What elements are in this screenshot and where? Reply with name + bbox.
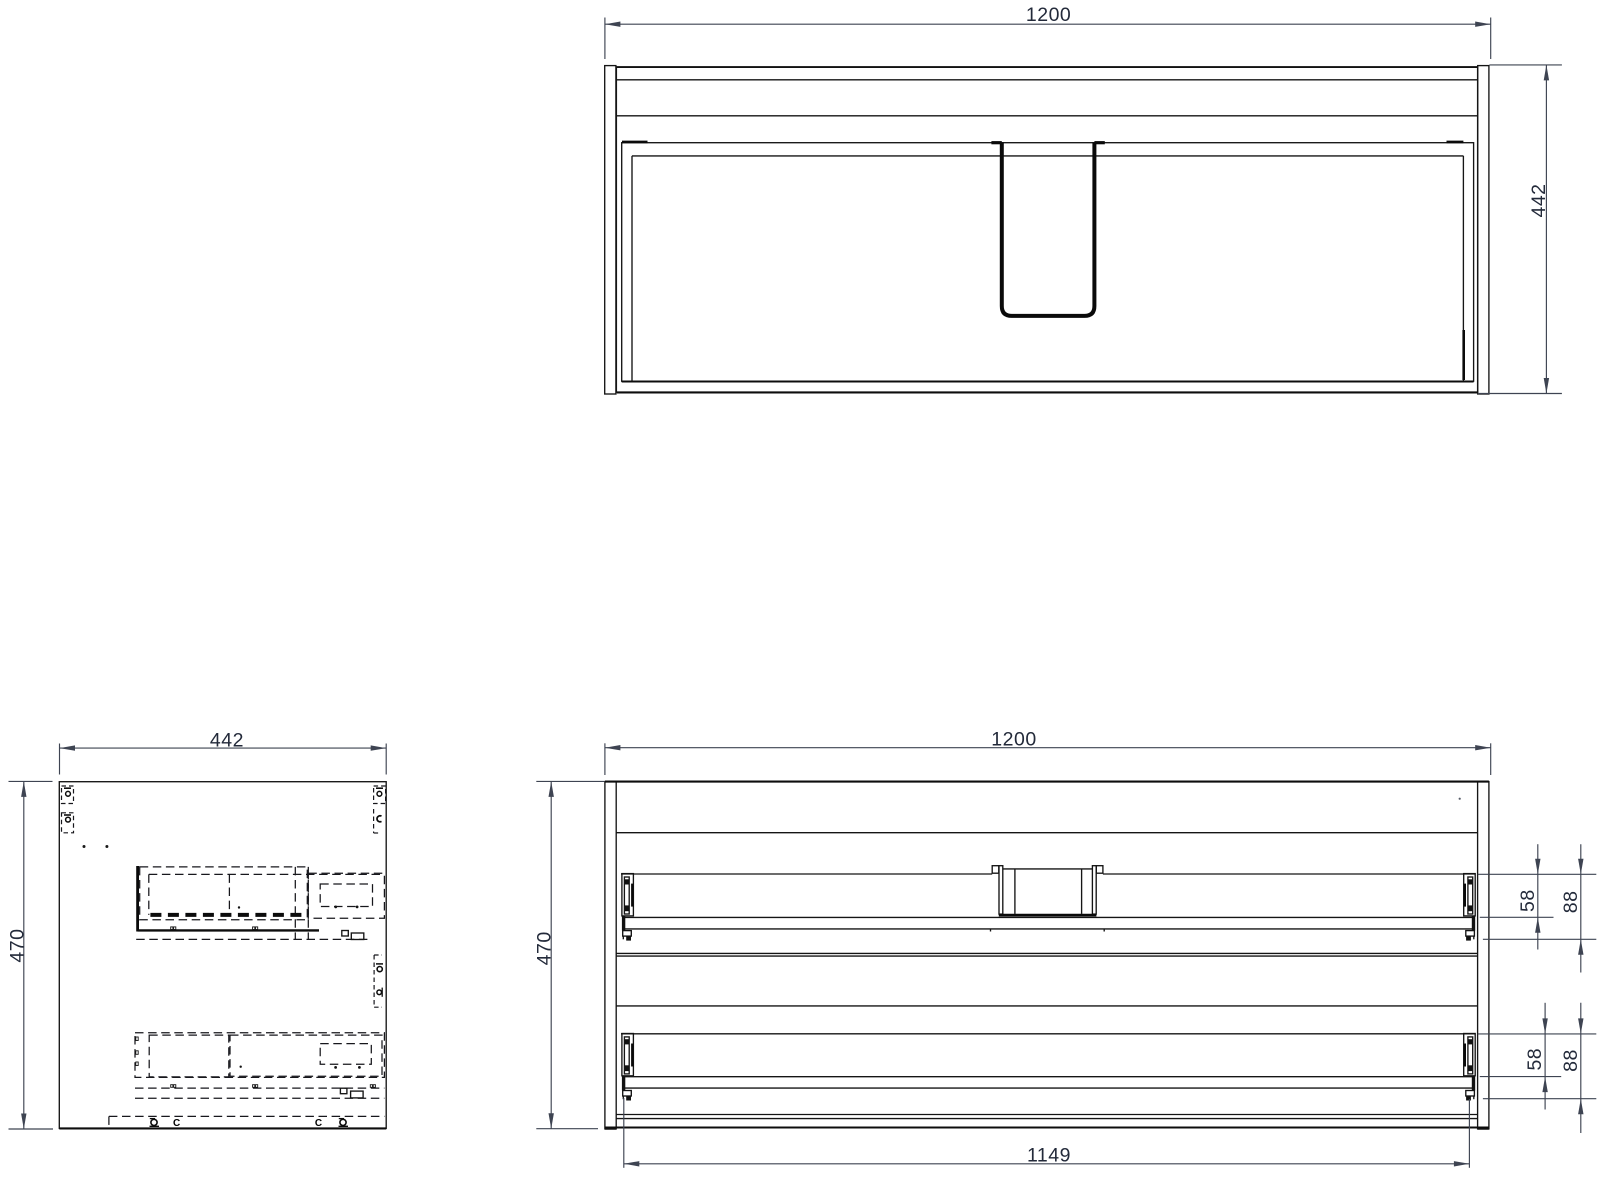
svg-text:442: 442 — [1528, 183, 1550, 217]
svg-text:C: C — [315, 1118, 322, 1129]
svg-text:442: 442 — [210, 730, 244, 752]
svg-text:470: 470 — [6, 929, 28, 963]
svg-text:470: 470 — [533, 931, 555, 965]
svg-text:1200: 1200 — [991, 728, 1036, 750]
svg-text:58: 58 — [1517, 889, 1539, 912]
svg-text:C: C — [173, 1118, 180, 1129]
svg-text:88: 88 — [1560, 1049, 1582, 1072]
svg-text:88: 88 — [1560, 891, 1582, 914]
svg-text:1200: 1200 — [1026, 4, 1071, 26]
svg-text:1149: 1149 — [1027, 1144, 1071, 1166]
svg-text:58: 58 — [1524, 1048, 1546, 1071]
